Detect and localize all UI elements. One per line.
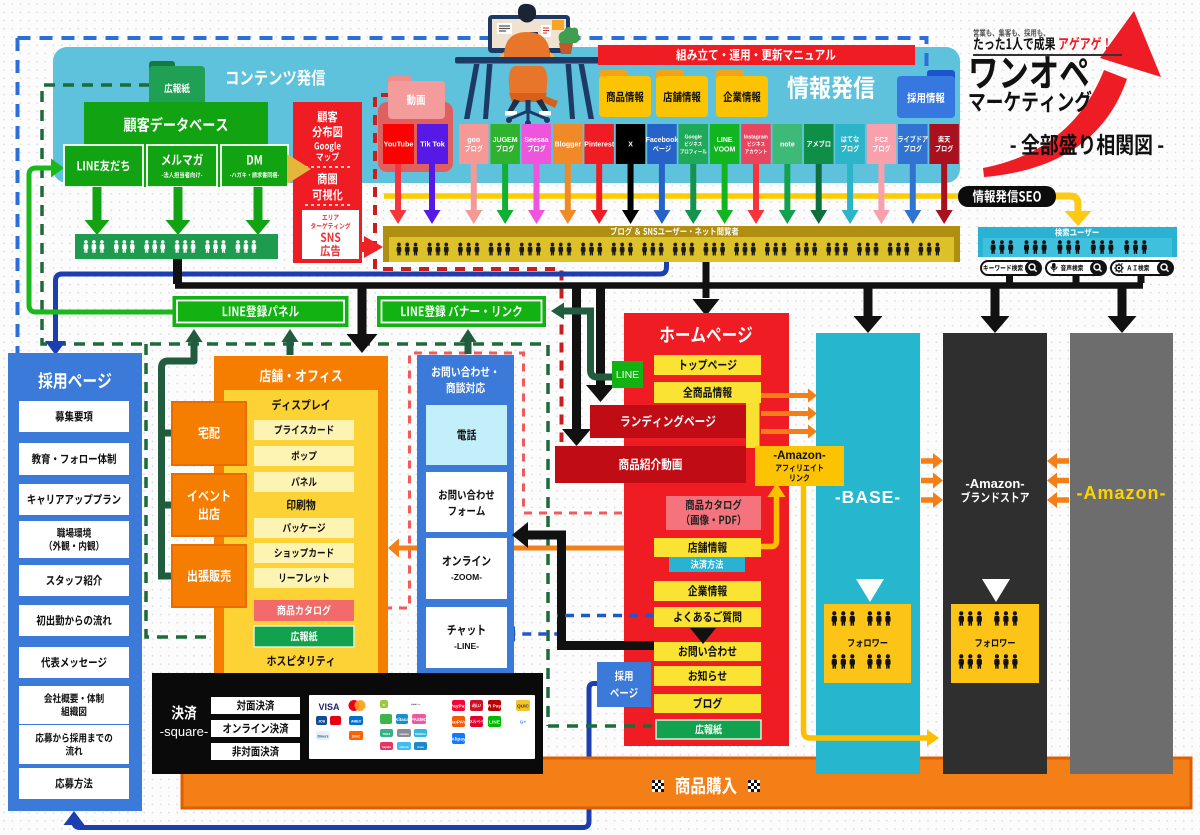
svg-text:Diners: Diners [318,734,329,738]
svg-text:LINE: LINE [489,719,501,725]
svg-text:YouTube: YouTube [384,140,414,149]
svg-text:R Pay: R Pay [488,703,502,709]
svg-text:manaca: manaca [399,733,409,736]
svg-text:JCB: JCB [318,719,325,723]
svg-text:AMEX: AMEX [351,719,362,723]
svg-text:goo: goo [467,137,480,144]
svg-text:-ZOOM-: -ZOOM- [451,572,482,582]
svg-text:VISA: VISA [318,702,340,712]
svg-text:Blogger: Blogger [555,142,582,149]
svg-text:note: note [780,142,795,149]
svg-text:VOOM: VOOM [714,146,736,153]
svg-text:hayaka: hayaka [382,746,391,749]
svg-text:Pinterest: Pinterest [584,142,615,149]
svg-text:FC2: FC2 [875,137,888,144]
svg-text:-Amazon-: -Amazon- [965,476,1024,491]
svg-text:JUGEM: JUGEM [493,137,518,144]
svg-text:Instagram: Instagram [744,134,768,140]
svg-text:Google: Google [685,134,702,140]
svg-text:Alipay: Alipay [451,736,466,742]
svg-text:Facebook: Facebook [646,137,679,144]
svg-text:X: X [628,142,633,149]
svg-text:-square-: -square- [160,724,208,739]
svg-text:SUGOCA: SUGOCA [415,733,426,736]
svg-text:Kitaca: Kitaca [395,717,409,722]
svg-text:LINE: LINE [616,369,639,381]
svg-text:TOICA: TOICA [383,733,391,736]
svg-text:icsca: icsca [417,746,424,749]
svg-text:-BASE-: -BASE- [835,487,901,507]
svg-text:auPAY: auPAY [451,719,466,725]
svg-text:nimoca: nimoca [400,746,409,749]
svg-text:PASMO: PASMO [411,717,428,722]
svg-text:PayPay: PayPay [450,703,467,709]
svg-text:-LINE-: -LINE- [454,641,479,651]
svg-text:QUIC: QUIC [517,703,530,709]
svg-text:IC: IC [383,704,386,707]
svg-text:DISC: DISC [352,734,361,738]
svg-text:-Amazon-: -Amazon- [773,450,826,462]
svg-text:Seesaa: Seesaa [524,137,548,144]
svg-text:LINE: LINE [717,137,733,144]
svg-text:G+: G+ [520,719,527,725]
svg-text:-Amazon-: -Amazon- [1077,483,1167,503]
svg-text:Tik Tok: Tik Tok [420,140,445,149]
